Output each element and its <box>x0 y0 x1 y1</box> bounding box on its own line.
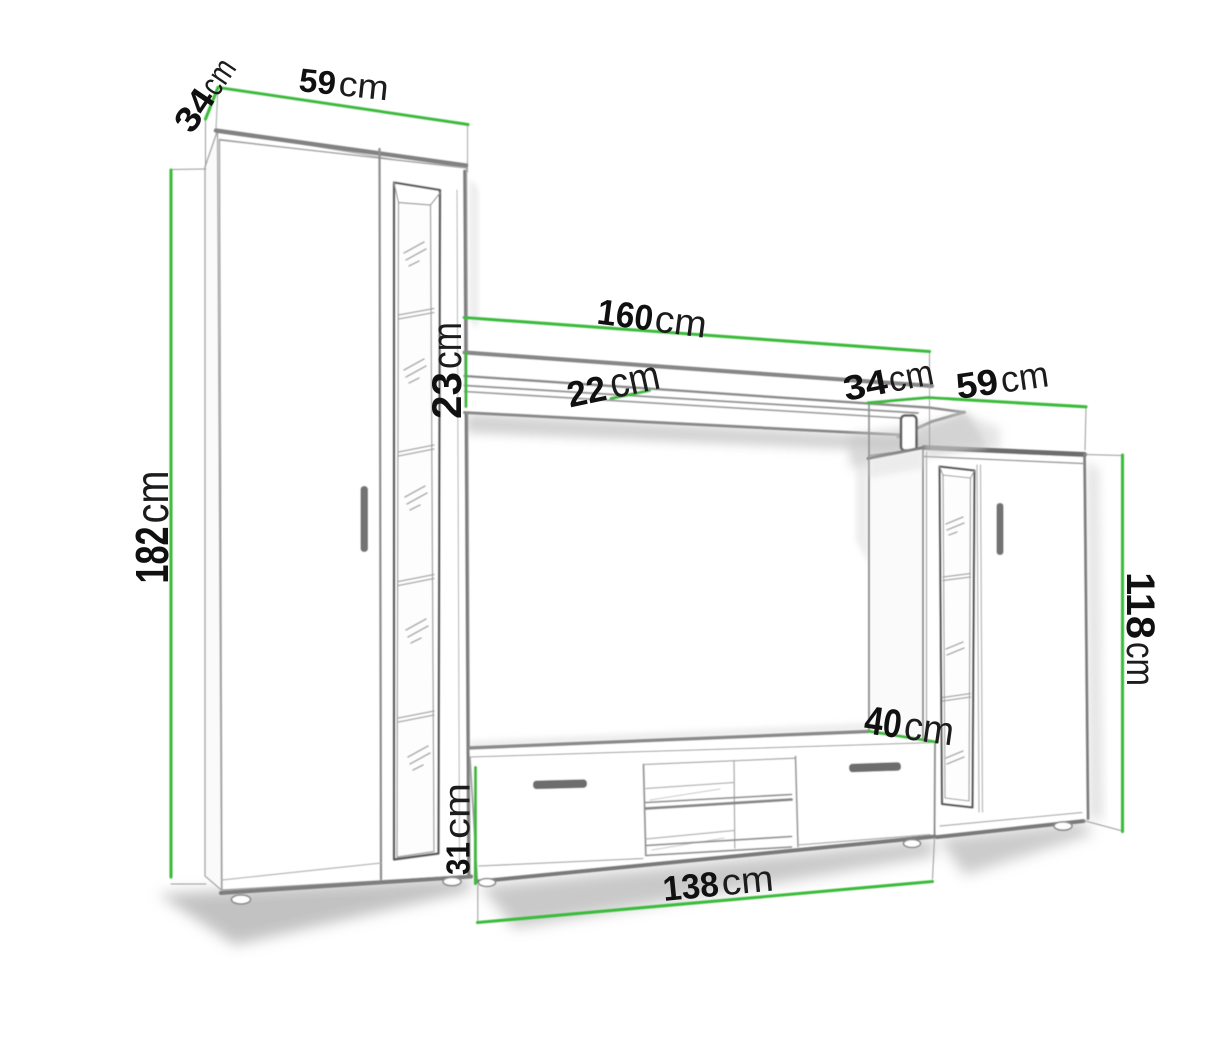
svg-text:cm: cm <box>998 353 1051 400</box>
svg-text:cm: cm <box>720 858 776 904</box>
svg-text:118: 118 <box>1118 572 1162 639</box>
svg-text:59: 59 <box>953 360 1000 406</box>
svg-text:cm: cm <box>437 783 478 839</box>
svg-text:23: 23 <box>423 372 470 419</box>
svg-text:cm: cm <box>126 471 178 524</box>
svg-text:cm: cm <box>885 351 937 400</box>
svg-text:22: 22 <box>563 367 610 415</box>
svg-text:cm: cm <box>337 64 391 108</box>
svg-text:138: 138 <box>661 865 720 909</box>
svg-text:34: 34 <box>840 362 891 409</box>
svg-text:59: 59 <box>297 61 338 102</box>
svg-text:cm: cm <box>901 704 957 755</box>
svg-text:cm: cm <box>1118 642 1162 686</box>
svg-text:182: 182 <box>126 527 178 584</box>
svg-text:cm: cm <box>652 298 709 346</box>
svg-text:40: 40 <box>862 698 905 747</box>
svg-text:cm: cm <box>423 322 470 369</box>
svg-text:31: 31 <box>440 842 477 875</box>
svg-text:160: 160 <box>595 291 656 339</box>
